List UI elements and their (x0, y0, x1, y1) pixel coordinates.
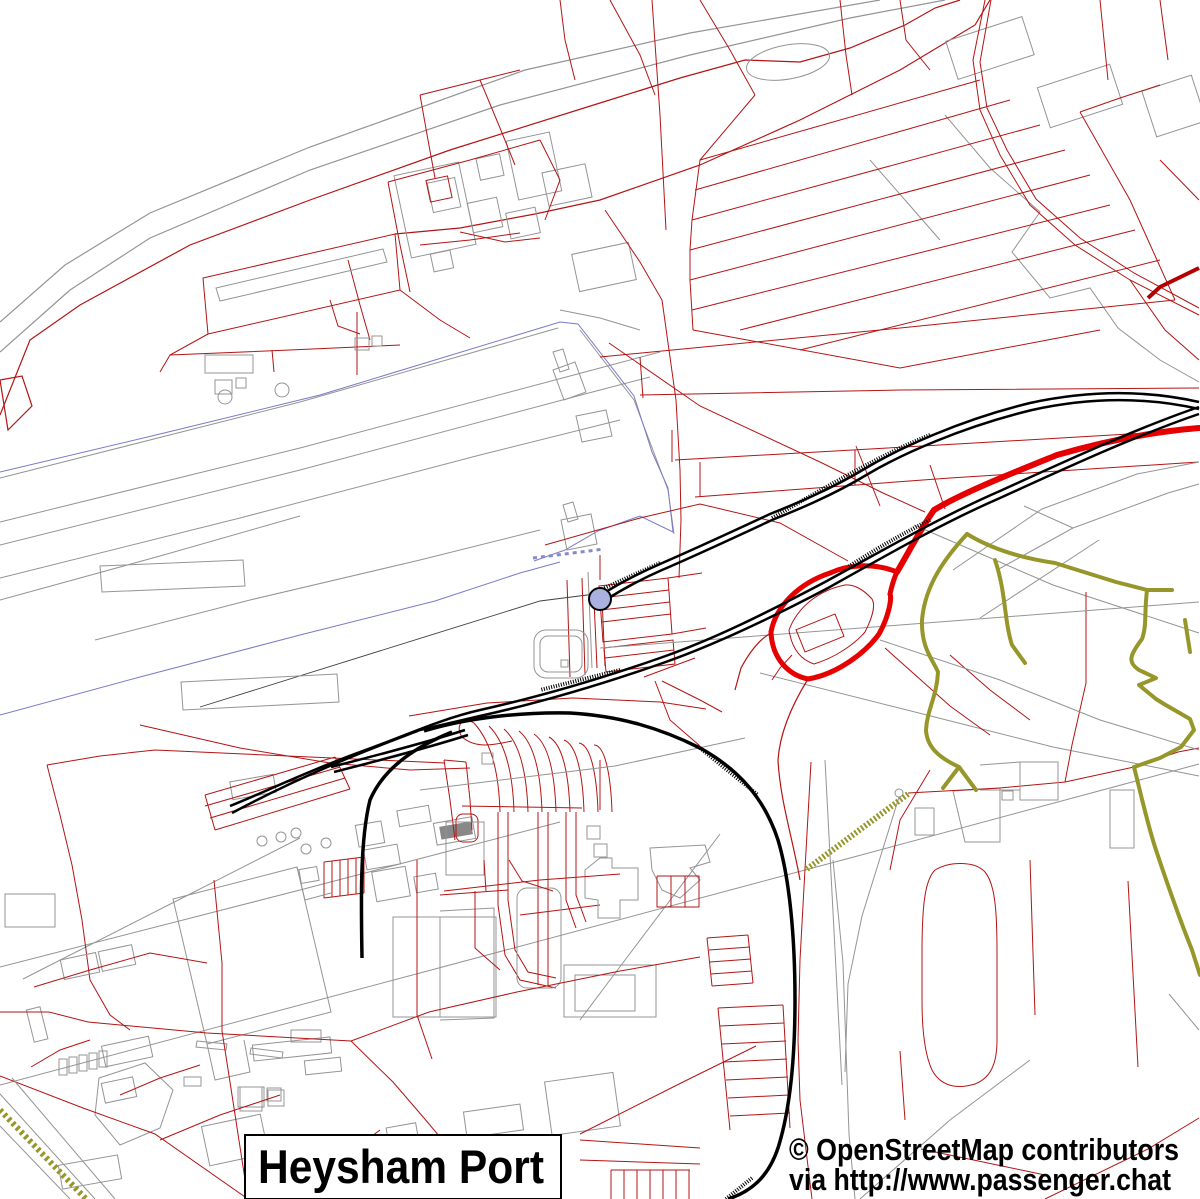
svg-text:via http://www.passenger.chat: via http://www.passenger.chat (789, 1162, 1171, 1197)
svg-text:Heysham Port: Heysham Port (258, 1140, 544, 1193)
